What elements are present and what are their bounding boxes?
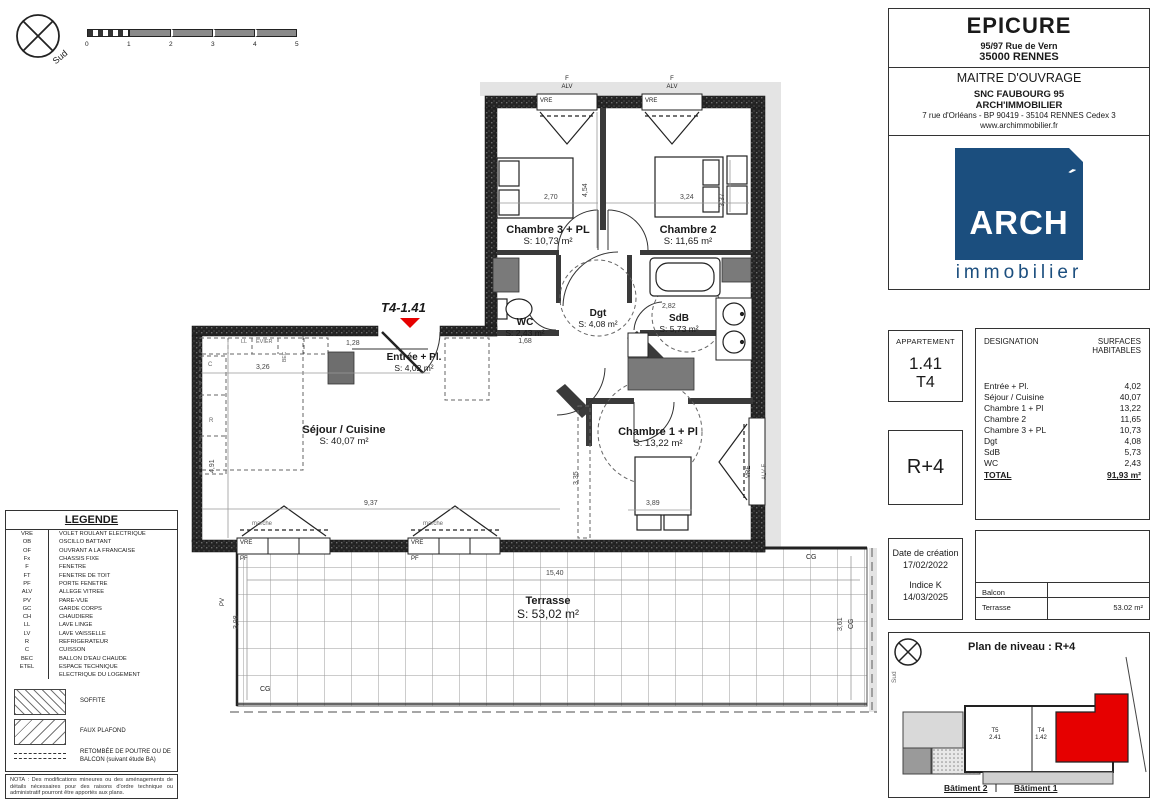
legend-row: Fx CHASSIS FIXE (6, 555, 177, 563)
room-name: SdB (644, 313, 714, 324)
dim-label: 4,91 (209, 459, 216, 473)
surface-row: SdB 5,73 (984, 447, 1141, 458)
legend-label: ELECTRIQUE DU LOGEMENT (48, 671, 177, 679)
legend-row: ETEL ESPACE TECHNIQUE (6, 663, 177, 671)
legend-label: CHAUDIERE (48, 613, 177, 621)
legend-row: PF PORTE FENETRE (6, 580, 177, 588)
room-area: S: 10,73 m² (490, 236, 606, 247)
dim-label: 3,98 (233, 615, 240, 629)
legend-abbr: PF (6, 581, 48, 587)
legend-abbr: Fx (6, 556, 48, 562)
scale-tick: 4 (253, 41, 257, 48)
room-chambre3: Chambre 3 + PL S: 10,73 m² (490, 224, 606, 247)
room-area: S: 4,08 m² (563, 319, 633, 329)
surface-row: WC 2,43 (984, 458, 1141, 469)
legend-label: FENETRE (48, 563, 177, 571)
legend-label: PARE-VUE (48, 596, 177, 604)
cg-label: CG (848, 619, 855, 630)
total-value: 91,93 m² (1107, 469, 1141, 481)
owner-line: 7 rue d'Orléans - BP 90419 - 35104 RENNE… (889, 111, 1149, 121)
unit-label: T4-1.41 (381, 300, 426, 315)
legend-abbr: LV (6, 631, 48, 637)
room-name: WC (494, 317, 556, 328)
surface-value: 5,73 (1124, 447, 1141, 458)
col-surfaces: SURFACES HABITABLES (1083, 337, 1141, 355)
surface-row: Entrée + Pl. 4,02 (984, 381, 1141, 392)
site-unit-t5: T5 2.41 (980, 728, 1010, 742)
surface-value: 11,65 (1120, 414, 1141, 425)
room-sdb: SdB S: 5,73 m² (644, 313, 714, 334)
legend-soffite-row: SOFFITE (6, 689, 105, 715)
floorplan-sheet: Sud 0 1 2 3 4 5 T4-1.41 Chambre 3 + PL S… (0, 0, 1155, 801)
legend-label: OSCILLO BATTANT (48, 538, 177, 546)
room-chambre1: Chambre 1 + Pl S: 13,22 m² (600, 426, 716, 449)
interior-walls (497, 108, 753, 446)
unit-type: T5 (980, 728, 1010, 735)
legend-row: BEC BALLON D'EAU CHAUDE (6, 654, 177, 662)
surface-label: Chambre 1 + Pl (984, 403, 1043, 414)
site-compass-sud: Sud (891, 671, 898, 683)
logo-notch (1069, 148, 1083, 162)
surface-label: Dgt (984, 436, 997, 447)
terrasse-label: Terrasse (976, 598, 1048, 619)
logo-sub-text: immobilier (889, 262, 1149, 284)
exterior-surfaces-table: Balcon Terrasse 53.02 m² (975, 530, 1150, 620)
date-created: 17/02/2022 (889, 559, 962, 571)
legend-row: R REFRIGERATEUR (6, 638, 177, 646)
room-terrasse: Terrasse S: 53,02 m² (490, 595, 606, 621)
marche-label: marche (423, 521, 443, 527)
surface-row: Chambre 2 11,65 (984, 414, 1141, 425)
legend-abbr: GC (6, 606, 48, 612)
terrasse-value: 53.02 m² (1048, 598, 1149, 619)
project-address: 95/97 Rue de Vern (889, 41, 1149, 51)
dim-label: 3,35 (573, 471, 580, 485)
owner-website: www.archimmobilier.fr (889, 121, 1149, 131)
level-box: R+4 (888, 430, 963, 505)
cuisson-label: C (208, 362, 212, 368)
surface-value: 4,02 (1124, 381, 1141, 392)
legend-label: REFRIGERATEUR (48, 638, 177, 646)
dim-label: 2,70 (544, 194, 558, 201)
dim-label: 15,40 (546, 570, 564, 577)
legend-abbr: VRE (6, 531, 48, 537)
scale-tick: 1 (127, 41, 131, 48)
legend-label: VOLET ROULANT ELECTRIQUE (48, 530, 177, 538)
balcon-row: Balcon (976, 582, 1149, 597)
title-block-header: EPICURE 95/97 Rue de Vern 35000 RENNES M… (888, 8, 1150, 290)
retombee-note: (suivant étude BA) (106, 757, 155, 763)
legend-abbr: PV (6, 598, 48, 604)
room-name: Chambre 1 + Pl (600, 426, 716, 438)
scale-tick: 2 (169, 41, 173, 48)
legend-abbr: C (6, 647, 48, 653)
legend-faux-plafond-row: FAUX PLAFOND (6, 719, 126, 745)
surface-label: WC (984, 458, 998, 469)
surface-row: Chambre 1 + Pl 13,22 (984, 403, 1141, 414)
cg-label: CG (260, 686, 271, 693)
balcon-label: Balcon (976, 583, 1048, 597)
owner-line: SNC FAUBOURG 95 (889, 89, 1149, 100)
logo-main-text: ARCH (955, 204, 1083, 242)
dim-label: 3,37 (719, 193, 726, 207)
legend-label: PORTE FENETRE (48, 580, 177, 588)
legend-title: LEGENDE (6, 511, 177, 530)
owner-line: ARCH'IMMOBILIER (889, 100, 1149, 111)
surface-value: 13,22 (1120, 403, 1141, 414)
dim-label: 3,89 (646, 500, 660, 507)
room-area: S: 5,73 m² (644, 324, 714, 334)
project-name: EPICURE (889, 13, 1149, 39)
room-sejour: Séjour / Cuisine S: 40,07 m² (286, 424, 402, 447)
legend-row: OF OUVRANT A LA FRANCAISE (6, 547, 177, 555)
surface-label: Chambre 3 + PL (984, 425, 1046, 436)
legend-row: ALV ALLEGE VITREE (6, 588, 177, 596)
vre-label: VRE (645, 98, 657, 104)
col-designation: DESIGNATION (984, 337, 1039, 355)
f-label: F (642, 76, 702, 84)
ll-label: LL (241, 339, 247, 345)
legend-label: BALLON D'EAU CHAUDE (48, 654, 177, 662)
faux-plafond-swatch (14, 719, 66, 745)
legend-label: LAVE VAISSELLE (48, 630, 177, 638)
surfaces-table: DESIGNATION SURFACES HABITABLES Entrée +… (975, 328, 1150, 520)
entrance-marker-icon (400, 318, 420, 328)
legend-label: GARDE CORPS (48, 605, 177, 613)
surface-label: SdB (984, 447, 1000, 458)
dashed-details (200, 260, 724, 538)
dim-label: 9,37 (364, 500, 378, 507)
legend-items: VRE VOLET ROULANT ELECTRIQUE OB OSCILLO … (6, 530, 177, 679)
surfaces-total-row: TOTAL 91,93 m² (976, 469, 1149, 481)
retombee-label: RETOMBÉE DE POUTRE OU DE BALCON (suivant… (80, 749, 176, 764)
surface-value: 40,07 (1120, 392, 1141, 403)
dim-label: 3,61 (837, 617, 844, 631)
site-plan-title: Plan de niveau : R+4 (968, 641, 1075, 653)
legend-label: OUVRANT A LA FRANCAISE (48, 547, 177, 555)
refrigerateur-label: R (209, 418, 213, 424)
surface-label: Séjour / Cuisine (984, 392, 1044, 403)
marche-label: marche (252, 521, 272, 527)
room-area: S: 2,43 m² (494, 328, 556, 338)
scale-tick: 5 (295, 41, 299, 48)
unit-number: 2.41 (980, 735, 1010, 742)
balcon-value (1048, 583, 1149, 597)
batiment2-label: Bâtiment 2 (944, 783, 987, 793)
surface-row: Chambre 3 + PL 10,73 (984, 425, 1141, 436)
room-name: Chambre 2 (628, 224, 748, 236)
alv-f-label: ALV F (762, 464, 768, 480)
surface-row: Séjour / Cuisine 40,07 (984, 392, 1141, 403)
divider (889, 135, 1149, 136)
date-created-label: Date de création (889, 547, 962, 559)
room-name: Terrasse (490, 595, 606, 607)
vre-label: VRE (240, 540, 252, 546)
soffite-swatch (14, 689, 66, 715)
alv-label: ALV (537, 84, 597, 92)
legend-box: LEGENDE VRE VOLET ROULANT ELECTRIQUE OB … (5, 510, 178, 772)
legend-abbr: ETEL (6, 664, 48, 670)
dim-label: 3,24 (680, 194, 694, 201)
room-wc: WC S: 2,43 m² 1,68 (494, 317, 556, 345)
room-name: Chambre 3 + PL (490, 224, 606, 236)
spacer (889, 571, 962, 579)
surface-label: Chambre 2 (984, 414, 1026, 425)
room-entree: Entrée + Pl. S: 4,02 m² (368, 352, 460, 373)
scale-tick: 3 (211, 41, 215, 48)
date-box: Date de création 17/02/2022 Indice K 14/… (888, 538, 963, 620)
project-city: 35000 RENNES (889, 51, 1149, 63)
site-unit-t4: T4 1.42 (1026, 728, 1056, 742)
legend-abbr: CH (6, 614, 48, 620)
legend-row: LL LAVE LINGE (6, 621, 177, 629)
surface-label: Entrée + Pl. (984, 381, 1029, 392)
legend-abbr: R (6, 639, 48, 645)
legend-row: PV PARE-VUE (6, 596, 177, 604)
total-label: TOTAL (984, 469, 1012, 481)
surface-row: Dgt 4,08 (984, 436, 1141, 447)
legend-label: FENETRE DE TOIT (48, 571, 177, 579)
evier-label: EVIER (256, 339, 273, 345)
legend-row: LV LAVE VAISSELLE (6, 630, 177, 638)
legend-label: LAVE LINGE (48, 621, 177, 629)
pf-label: PF (411, 556, 419, 562)
terrasse-row: Terrasse 53.02 m² (976, 597, 1149, 619)
cg-label: CG (806, 554, 817, 561)
unit-number: 1.42 (1026, 735, 1056, 742)
window-label-f-alv: F ALV (642, 76, 702, 91)
unit-type: T4 (1026, 728, 1056, 735)
scale-bar-segment (87, 29, 129, 37)
logo-accent: ´ (1063, 163, 1078, 195)
room-name: Séjour / Cuisine (286, 424, 402, 436)
legend-abbr: FT (6, 573, 48, 579)
legend-row: CH CHAUDIERE (6, 613, 177, 621)
room-area: S: 40,07 m² (286, 436, 402, 447)
vre-label: VRE (746, 466, 752, 478)
faux-plafond-label: FAUX PLAFOND (80, 728, 126, 736)
legend-row: VRE VOLET ROULANT ELECTRIQUE (6, 530, 177, 538)
pv-label: PV (220, 598, 226, 606)
vre-label: VRE (540, 98, 552, 104)
surfaces-header: DESIGNATION SURFACES HABITABLES (976, 329, 1149, 355)
legend-row: OB OSCILLO BATTANT (6, 538, 177, 546)
scale-bar-segment (171, 29, 213, 37)
legend-label: ESPACE TECHNIQUE (48, 663, 177, 671)
indice-date: 14/03/2025 (889, 591, 962, 603)
divider (889, 67, 1149, 68)
legend-abbr: F (6, 564, 48, 570)
legend-abbr: OF (6, 548, 48, 554)
legend-abbr: OB (6, 539, 48, 545)
apartment-box: APPARTEMENT 1.41 T4 (888, 330, 963, 402)
room-area: S: 4,02 m² (368, 363, 460, 373)
soffite-label: SOFFITE (80, 698, 105, 706)
surface-value: 2,43 (1124, 458, 1141, 469)
surface-value: 4,08 (1124, 436, 1141, 447)
dim-label: 1,28 (346, 340, 360, 347)
room-area: S: 13,22 m² (600, 438, 716, 449)
surface-value: 10,73 (1120, 425, 1141, 436)
surfaces-rows: Entrée + Pl. 4,02 Séjour / Cuisine 40,07… (976, 381, 1149, 469)
legend-row: GC GARDE CORPS (6, 605, 177, 613)
nota-box: NOTA : Des modifications mineures ou des… (5, 774, 178, 799)
north-compass-icon (8, 8, 98, 88)
room-dgt: Dgt S: 4,08 m² (563, 308, 633, 329)
room-name: Dgt (563, 308, 633, 319)
batiment1-label: Bâtiment 1 (1014, 783, 1057, 793)
f-label: F (537, 76, 597, 84)
pf-label: PF (240, 556, 248, 562)
legend-row: F FENETRE (6, 563, 177, 571)
arch-immobilier-logo: ´ ARCH (955, 148, 1083, 260)
vre-label: VRE (411, 540, 423, 546)
legend-retombee-row: RETOMBÉE DE POUTRE OU DE BALCON (suivant… (6, 749, 176, 764)
legend-row: C CUISSON (6, 646, 177, 654)
legend-abbr: ALV (6, 589, 48, 595)
site-plan-box (888, 632, 1150, 798)
indice-label: Indice K (889, 579, 962, 591)
dim-label: 2,82 (662, 303, 676, 310)
dim-label: 3,26 (256, 364, 270, 371)
window-label-f-alv: F ALV (537, 76, 597, 91)
scale-bar-segment (255, 29, 297, 37)
legend-abbr: LL (6, 622, 48, 628)
scale-bar-segment (213, 29, 255, 37)
legend-label: CHASSIS FIXE (48, 555, 177, 563)
legend-label: ALLEGE VITREE (48, 588, 177, 596)
legend-label: CUISSON (48, 646, 177, 654)
compass-sud-label: Sud (51, 48, 70, 66)
dim-label: 1,68 (494, 338, 556, 345)
room-name: Entrée + Pl. (368, 352, 460, 363)
room-area: S: 53,02 m² (490, 607, 606, 621)
legend-abbr: BEC (6, 656, 48, 662)
bec-label: BEC (282, 352, 288, 362)
owner-title: MAITRE D'OUVRAGE (889, 71, 1149, 85)
legend-row: FT FENETRE DE TOIT (6, 571, 177, 579)
scale-bar-segment (129, 29, 171, 37)
alv-label: ALV (642, 84, 702, 92)
scale-tick: 0 (85, 41, 89, 48)
room-chambre2: Chambre 2 S: 11,65 m² (628, 224, 748, 247)
dashed-line-swatch (6, 750, 66, 763)
legend-row: ELECTRIQUE DU LOGEMENT (6, 671, 177, 679)
apartment-type: T4 (889, 374, 962, 392)
apartment-number: 1.41 (889, 354, 962, 374)
dim-label: 4,54 (582, 183, 589, 197)
room-area: S: 11,65 m² (628, 236, 748, 247)
apartment-label: APPARTEMENT (889, 337, 962, 346)
